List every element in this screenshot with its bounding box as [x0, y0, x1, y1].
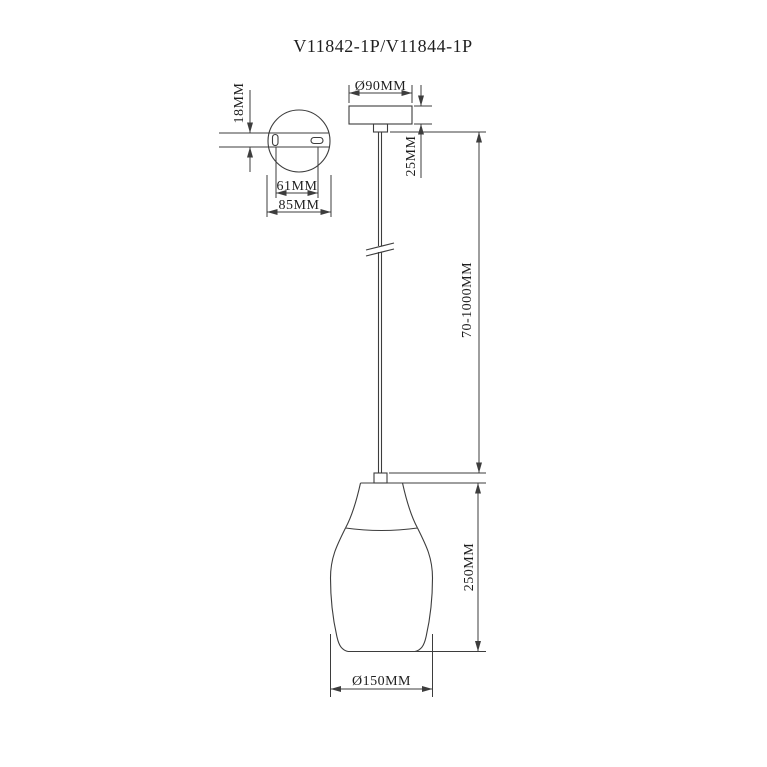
mounting-slot-left [273, 135, 279, 146]
shade-glass-left-side [331, 528, 349, 652]
pendant-lamp-dimension-drawing: V11842-1P/V11844-1P 18MM 61MM [0, 0, 767, 767]
dimension-cable-length: 70-1000MM [389, 132, 486, 473]
shade-cap-joint-line [346, 528, 418, 531]
dimension-shade-height-label: 250MM [462, 543, 477, 591]
dimension-85mm-label: 85MM [279, 198, 320, 213]
dimension-18mm-label: 18MM [232, 83, 247, 124]
dimension-25mm-label: 25MM [404, 136, 419, 177]
dimension-shade-height: 250MM [462, 483, 478, 652]
dimension-90mm: Ø90MM [349, 79, 412, 103]
dimension-cable-length-label: 70-1000MM [460, 262, 475, 338]
dimension-shade-diameter: Ø150MM [331, 634, 433, 697]
canopy-cable-gland [374, 124, 388, 132]
shade-cap-left-side [346, 483, 361, 528]
dimension-18mm: 18MM [232, 83, 250, 172]
cable-break-tick-upper [366, 243, 394, 250]
drawing-title: V11842-1P/V11844-1P [293, 36, 472, 56]
canopy-body [349, 106, 412, 124]
lamp-shade: 250MM Ø150MM [331, 483, 487, 697]
dimension-shade-diameter-label: Ø150MM [352, 674, 411, 689]
shade-holder-fitting [374, 473, 387, 483]
dimension-61mm: 61MM [276, 147, 318, 198]
dimension-61mm-label: 61MM [277, 179, 318, 194]
technical-drawing-page: V11842-1P/V11844-1P 18MM 61MM [0, 0, 767, 767]
shade-cap-right-side [403, 483, 418, 528]
shade-glass-right-side [415, 528, 433, 652]
suspension-cable: 70-1000MM [366, 132, 486, 483]
mounting-slot-right [311, 138, 323, 144]
cable-break-tick-lower [366, 249, 394, 256]
ceiling-plate-detail: 18MM 61MM 85MM [219, 83, 331, 217]
dimension-90mm-label: Ø90MM [355, 79, 407, 94]
detail-circle [268, 110, 330, 172]
ceiling-canopy: Ø90MM 25MM [349, 79, 432, 178]
